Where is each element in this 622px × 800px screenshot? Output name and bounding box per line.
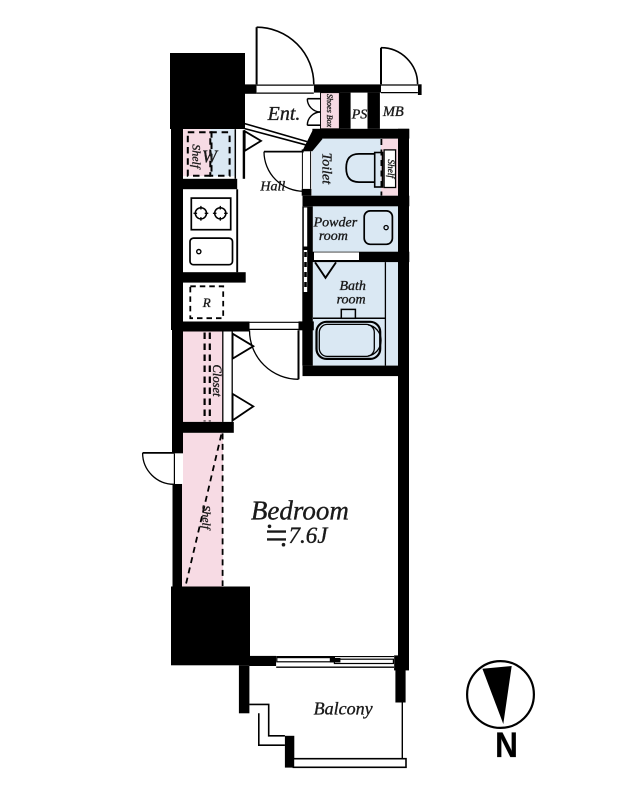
svg-text:Balcony: Balcony <box>314 698 373 718</box>
svg-text:PS: PS <box>351 108 368 123</box>
svg-text:Shelf: Shelf <box>199 505 213 531</box>
svg-text:Closet: Closet <box>210 365 224 397</box>
svg-text:MB: MB <box>382 104 404 120</box>
svg-text:Shelf: Shelf <box>385 159 396 179</box>
svg-text:room: room <box>337 293 366 308</box>
svg-text:Toilet: Toilet <box>319 153 334 185</box>
svg-text:Bedroom: Bedroom <box>251 496 349 526</box>
svg-text:Shelf: Shelf <box>189 144 203 170</box>
svg-text:Shoes Box: Shoes Box <box>325 94 334 128</box>
svg-text:R: R <box>202 295 211 310</box>
svg-text:W: W <box>202 147 219 167</box>
svg-text:7.6J: 7.6J <box>289 523 330 548</box>
svg-text:room: room <box>319 229 348 244</box>
svg-text:Hall: Hall <box>259 180 285 195</box>
svg-text:N: N <box>495 726 518 765</box>
svg-text:Ent.: Ent. <box>267 103 301 125</box>
